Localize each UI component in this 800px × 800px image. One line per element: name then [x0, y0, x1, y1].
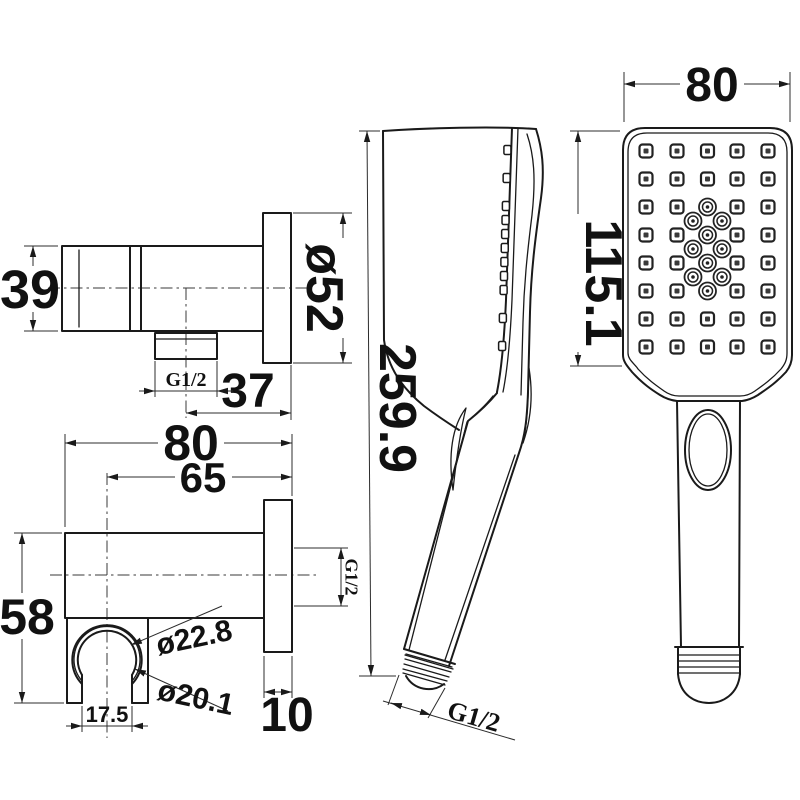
dim-80-head-label: 80	[685, 59, 738, 112]
dim-handset-overall-length: 259.9	[359, 131, 426, 676]
dim-bracket-flange-diameter: ø52	[293, 213, 353, 363]
dim-10-label: 10	[260, 689, 313, 742]
dim-bracket-inlet-thread: G1/2	[294, 548, 362, 606]
dim-holder-inner-diameter: ø20.1	[135, 669, 237, 722]
handset-front-outline	[623, 128, 792, 703]
dim-o52-label: ø52	[295, 243, 353, 333]
bracket-side-view: 39 ø52 37 G1/2	[0, 213, 353, 420]
dim-17-5-label: 17.5	[86, 702, 129, 727]
dim-259-9-label: 259.9	[368, 343, 426, 473]
dim-bracket-overall-width: 80	[65, 415, 292, 527]
dim-65-label: 65	[180, 454, 227, 501]
dim-head-width: 80	[624, 59, 790, 122]
dim-flange-thickness: 10	[260, 656, 313, 742]
dim-handset-connector-thread: G1/2	[383, 675, 515, 740]
dim-bracket-center-offset: 65	[107, 454, 292, 501]
dim-g12-connector-label: G1/2	[444, 695, 503, 738]
dim-bracket-body-height: 39	[0, 246, 60, 331]
dim-o22-8-label: ø22.8	[153, 614, 235, 662]
dim-g12-outlet-label: G1/2	[165, 369, 206, 391]
shower-set-dimension-drawing: 39 ø52 37 G1/2	[0, 0, 800, 800]
dim-holder-outer-diameter: ø22.8	[131, 606, 235, 662]
bracket-front-outline	[65, 500, 292, 703]
handset-side-view: 259.9 G1/2	[359, 128, 543, 740]
dim-39-label: 39	[0, 260, 60, 320]
handset-front-view: 80 115.1	[570, 59, 792, 703]
dim-bracket-overall-height: 58	[0, 533, 64, 703]
dim-g12-inlet-label: G1/2	[342, 558, 362, 595]
dim-115-1-label: 115.1	[574, 219, 632, 346]
bracket-front-view: 80 65 58 17.5 ø22.8	[0, 415, 362, 742]
side-view-nozzle-bumps	[499, 146, 511, 351]
dim-58-label: 58	[0, 589, 55, 645]
dim-o20-1-label: ø20.1	[155, 674, 237, 722]
spray-face-nozzle-grid	[640, 145, 775, 354]
technical-drawing-page: 39 ø52 37 G1/2	[0, 0, 800, 800]
